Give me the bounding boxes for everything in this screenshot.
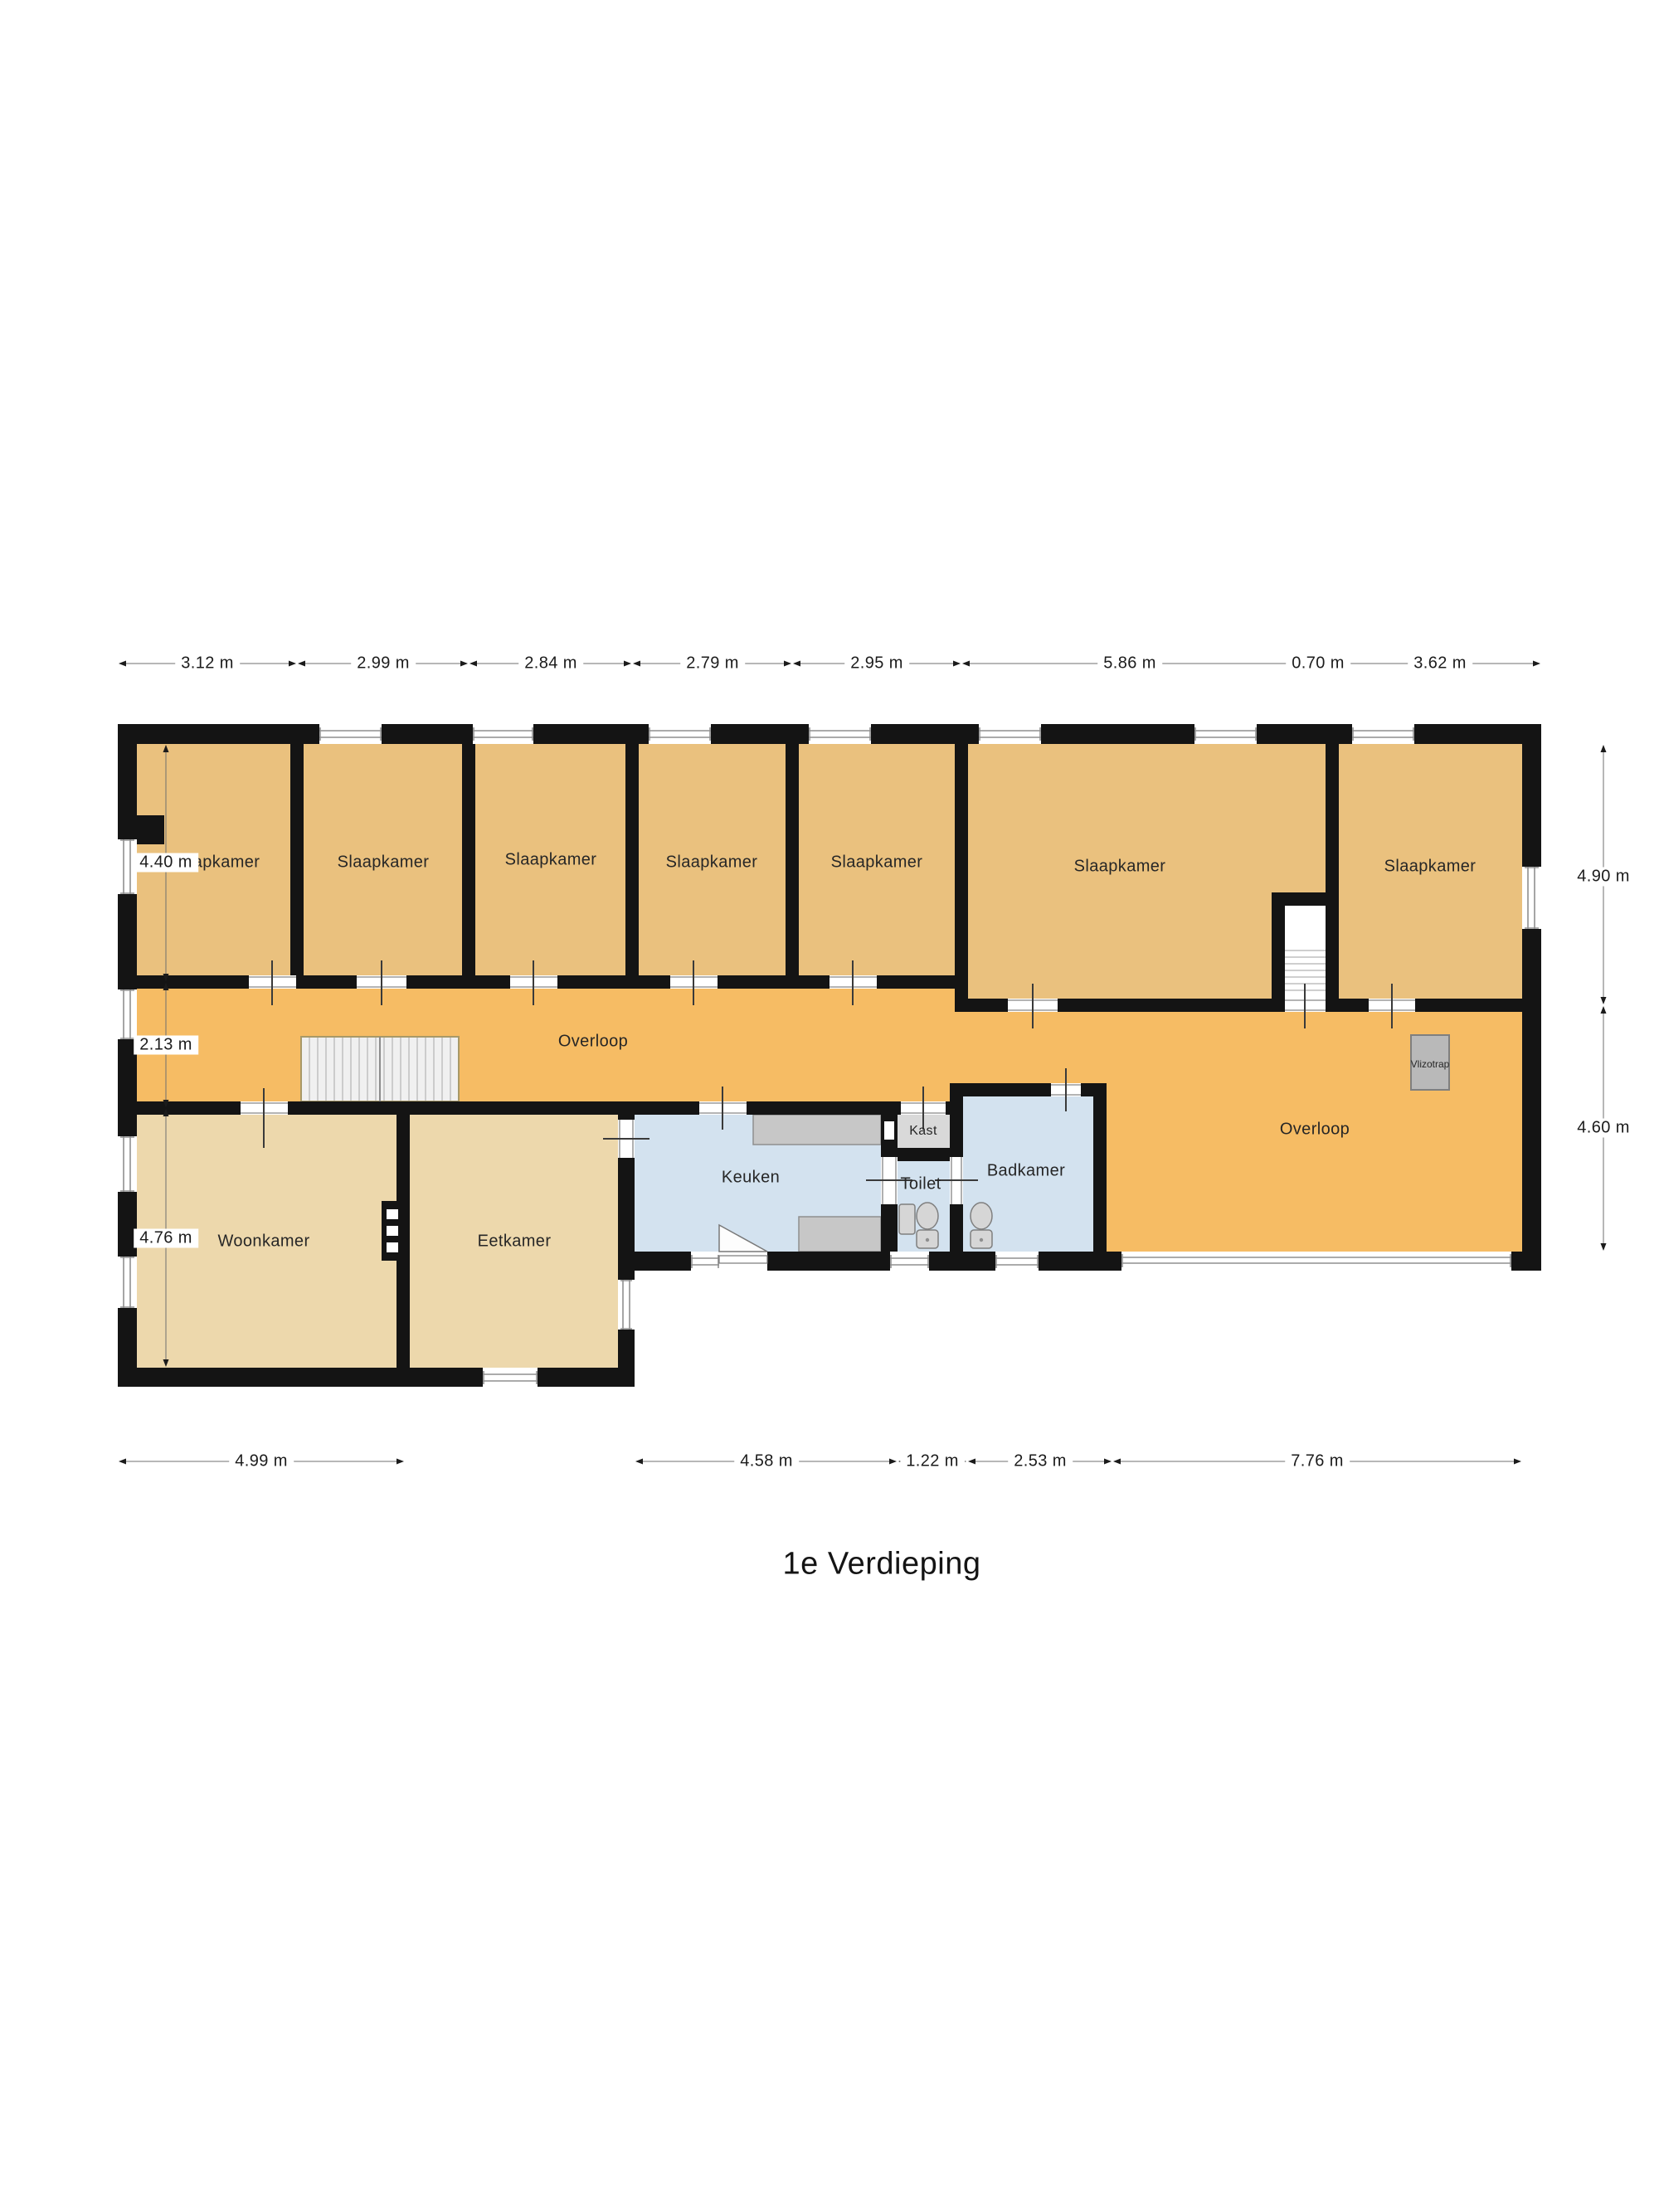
wall-exterior-bottom-left [118,1368,635,1387]
window-long [1121,1252,1511,1271]
room-label-kast: Kast [909,1124,937,1139]
room-label-slaapkamer-4: Slaapkamer [666,853,758,873]
room-label-overloop-left: Overloop [558,1033,628,1052]
window [473,724,533,744]
window [319,724,382,744]
room-overloop-passage-fill [963,1012,1107,1083]
dim-bottom-3: 1.22 m [900,1452,965,1471]
dim-top-6: 5.86 m [1097,654,1162,673]
dim-top-2: 2.99 m [351,654,416,673]
floorplan-page: Slaapkamer Slaapkamer Slaapkamer Slaapka… [0,0,1659,2212]
wall-divider-4 [786,744,799,989]
kitchen-counter-bottom [799,1217,881,1252]
window [809,724,871,744]
window [483,1368,538,1387]
dim-top-1: 3.12 m [175,654,240,673]
wall-divider-3 [625,744,639,989]
window [118,1257,137,1308]
window [618,1280,635,1330]
dim-right-1: 4.90 m [1571,868,1636,887]
staircase-main [301,1037,459,1101]
wall-divider-2 [462,744,475,989]
wall-exterior-right [1522,724,1541,1271]
room-label-keuken: Keuken [722,1169,780,1188]
toilet-bowl [917,1203,938,1229]
wall-stairwell-stub [1272,892,1326,906]
dim-top-7: 0.70 m [1286,654,1350,673]
wall-stub-slaapkamer1 [133,815,164,844]
room-label-badkamer: Badkamer [987,1162,1065,1181]
window [1194,724,1257,744]
room-label-slaapkamer-3: Slaapkamer [505,851,597,870]
window [979,724,1041,744]
wall-bottom-seg [929,1252,995,1271]
window [995,1252,1039,1271]
room-label-vlizotrap: Vlizotrap [1411,1058,1450,1070]
dim-bottom-2: 4.58 m [734,1452,799,1471]
chimney-flue [387,1209,398,1219]
wall-bottom-seg [1039,1252,1121,1271]
toilet-flush-dot [926,1238,929,1242]
room-label-overloop-right: Overloop [1280,1121,1350,1140]
floorplan-drawing [0,0,1659,2212]
window [1352,724,1414,744]
toilet-flush-dot [980,1238,983,1242]
chimney-flue [387,1242,398,1252]
window [1522,867,1541,929]
page-title: 1e Verdieping [783,1547,981,1582]
dim-left-3: 4.76 m [134,1229,198,1248]
wall-notch [884,1121,894,1140]
room-label-slaapkamer-2: Slaapkamer [338,853,430,873]
dim-bottom-1: 4.99 m [229,1452,294,1471]
window [890,1252,929,1271]
room-overloop-left-fill [137,989,963,1101]
dim-bottom-4: 2.53 m [1008,1452,1073,1471]
toilet-icon-badkamer [971,1203,992,1248]
wall-divider-1 [290,744,304,989]
room-label-eetkamer: Eetkamer [478,1232,552,1252]
chimney-flue [387,1226,398,1236]
wall-bottom-corner [1511,1252,1541,1271]
dim-top-5: 2.95 m [844,654,909,673]
door-leaf [719,1256,767,1263]
room-label-slaapkamer-6: Slaapkamer [1074,858,1166,877]
dim-top-4: 2.79 m [680,654,745,673]
wall-bottom-seg [767,1252,890,1271]
toilet-bowl [971,1203,992,1229]
dim-left-1: 4.40 m [134,853,198,873]
toilet-cistern [899,1204,915,1234]
wall-divider-5 [955,744,968,1012]
wall-bottom-seg [635,1252,691,1271]
room-label-toilet: Toilet [900,1175,941,1194]
wall-slaapkamer7-left [1326,744,1339,1012]
window [649,724,711,744]
dim-top-3: 2.84 m [518,654,583,673]
room-label-woonkamer: Woonkamer [217,1232,309,1252]
dim-left-2: 2.13 m [134,1036,198,1055]
room-label-slaapkamer-7: Slaapkamer [1384,858,1477,877]
wall-badkamer-right [1093,1083,1107,1252]
chimney-flues [387,1209,398,1252]
dim-top-8: 3.62 m [1408,654,1472,673]
kitchen-counter-top [753,1115,881,1145]
wall-stairwell-left [1272,892,1285,1012]
dim-bottom-5: 7.76 m [1285,1452,1350,1471]
toilet-icon [917,1203,938,1248]
room-label-slaapkamer-5: Slaapkamer [831,853,923,873]
dim-right-2: 4.60 m [1571,1119,1636,1138]
window [118,1136,137,1192]
window [691,1252,719,1271]
wall-badkamer-top [963,1083,1107,1096]
window [118,989,137,1039]
